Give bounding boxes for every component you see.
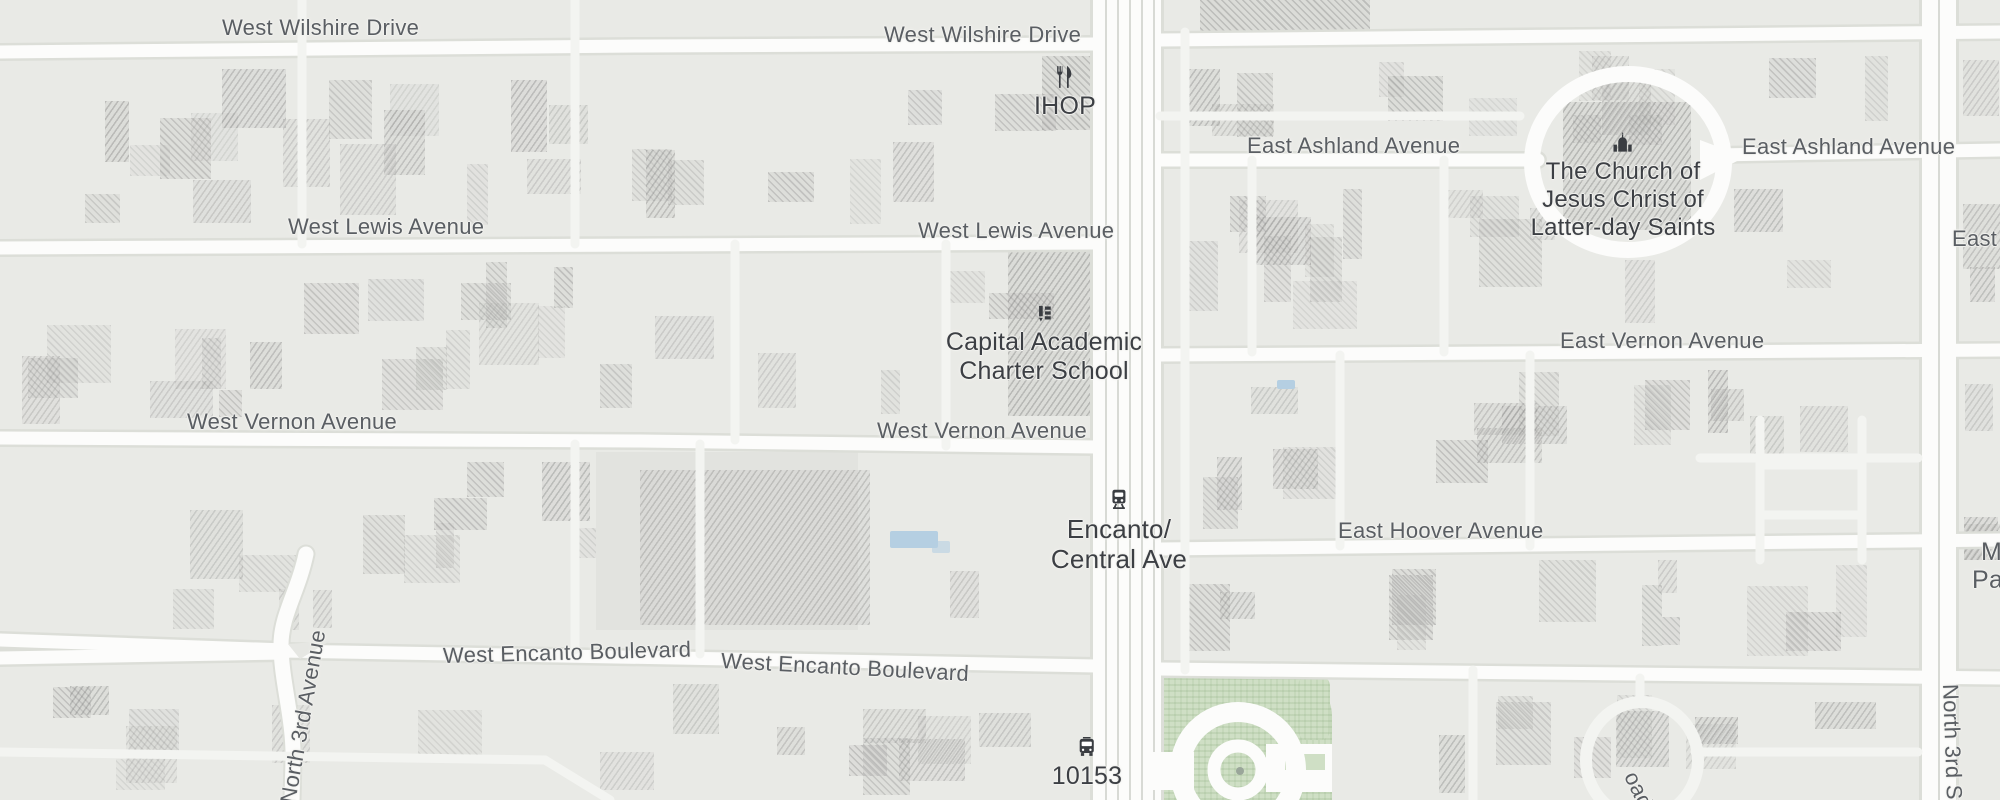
- poi-label: Capital Academic Charter School: [946, 328, 1142, 386]
- church-icon: [1610, 130, 1636, 156]
- school-icon: [1031, 300, 1057, 326]
- poi-layer: IHOPThe Church of Jesus Christ of Latter…: [0, 0, 2000, 800]
- poi-label: IHOP: [1034, 92, 1096, 121]
- poi-encanto-central-ave-station[interactable]: Encanto/ Central Ave: [1051, 486, 1187, 574]
- tram-icon: [1106, 486, 1132, 512]
- restaurant-icon: [1052, 64, 1078, 90]
- poi-capital-academic-charter-school[interactable]: Capital Academic Charter School: [946, 300, 1142, 386]
- poi-ihop[interactable]: IHOP: [1034, 64, 1096, 121]
- poi-bus-stop-10153[interactable]: 10153: [1052, 734, 1123, 791]
- map-canvas[interactable]: West Wilshire DriveWest Wilshire DriveEa…: [0, 0, 2000, 800]
- poi-label: Encanto/ Central Ave: [1051, 514, 1187, 574]
- poi-label: 10153: [1052, 762, 1123, 791]
- poi-lds-church[interactable]: The Church of Jesus Christ of Latter-day…: [1531, 130, 1716, 241]
- bus-icon: [1074, 734, 1100, 760]
- poi-label: The Church of Jesus Christ of Latter-day…: [1531, 158, 1716, 241]
